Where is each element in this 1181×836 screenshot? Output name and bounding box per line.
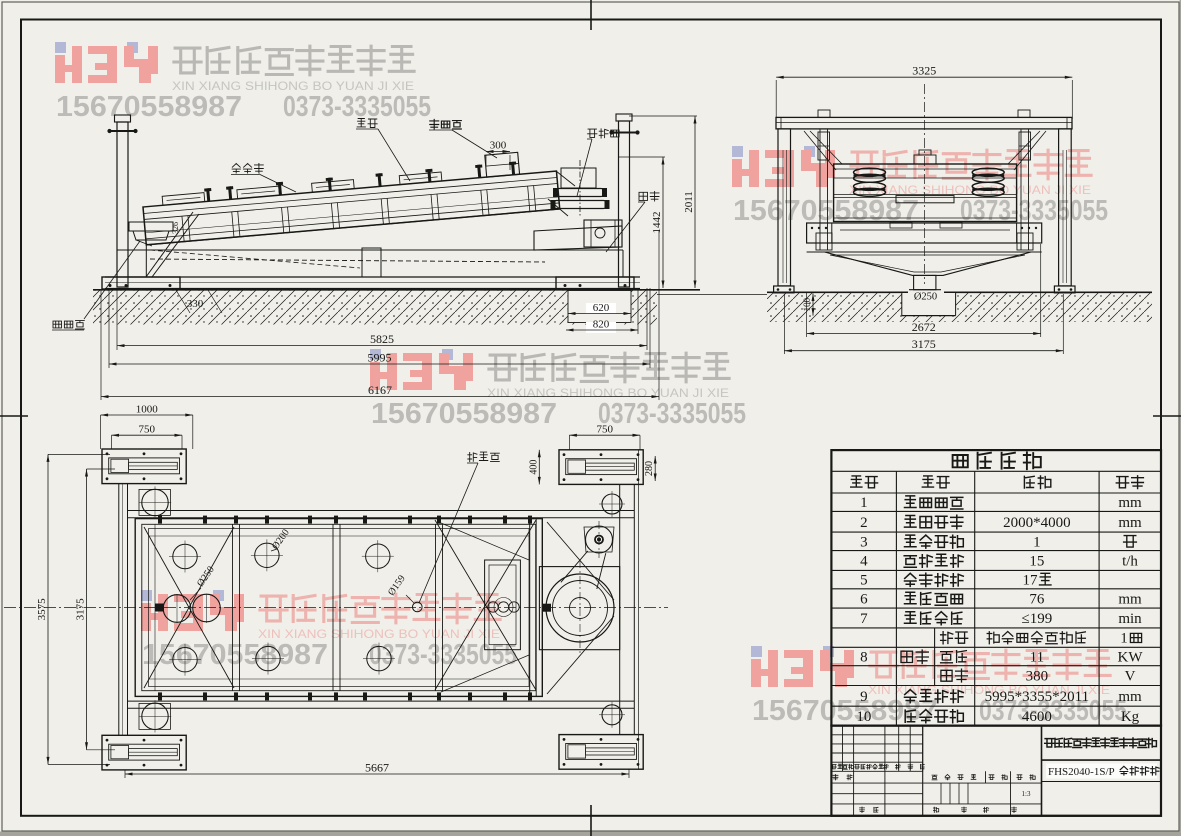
svg-text:7: 7: [860, 611, 868, 627]
svg-text:76: 76: [1029, 592, 1045, 608]
svg-text:5825: 5825: [370, 332, 394, 346]
svg-text:326: 326: [171, 222, 180, 234]
svg-text:5995: 5995: [368, 351, 392, 365]
svg-text:3: 3: [860, 534, 868, 550]
svg-text:mm: mm: [1118, 515, 1142, 531]
svg-text:≤199: ≤199: [1022, 611, 1053, 627]
svg-text:330: 330: [187, 298, 204, 310]
svg-text:620: 620: [593, 302, 610, 314]
svg-text:1000: 1000: [136, 404, 159, 416]
svg-text:mm: mm: [1118, 689, 1142, 705]
svg-text:11: 11: [1030, 650, 1044, 666]
svg-text:t/h: t/h: [1122, 554, 1138, 570]
svg-text:1: 1: [860, 495, 868, 511]
svg-text:15670558987: 15670558987: [142, 639, 328, 671]
svg-text:9: 9: [860, 689, 868, 705]
svg-text:300: 300: [490, 140, 507, 152]
svg-text:2672: 2672: [912, 320, 936, 334]
svg-text:17: 17: [1023, 573, 1039, 589]
svg-text:15: 15: [1029, 554, 1044, 570]
svg-text:3325: 3325: [912, 64, 936, 78]
svg-text:2: 2: [860, 515, 868, 531]
svg-text:750: 750: [139, 424, 156, 436]
svg-text:380: 380: [1026, 669, 1049, 685]
svg-text:4600: 4600: [1022, 709, 1052, 725]
svg-text:mm: mm: [1118, 592, 1142, 608]
svg-text:3175: 3175: [912, 337, 936, 351]
svg-text:1:3: 1:3: [1022, 790, 1031, 798]
svg-text:0373-3335055: 0373-3335055: [598, 398, 746, 430]
svg-text:5: 5: [860, 573, 868, 589]
svg-text:280: 280: [644, 461, 655, 476]
svg-text:5995*3355*2011: 5995*3355*2011: [985, 689, 1089, 705]
svg-text:15670558987: 15670558987: [56, 91, 242, 123]
svg-text:100: 100: [802, 297, 812, 311]
svg-text:Kg: Kg: [1121, 709, 1140, 725]
svg-text:400: 400: [528, 460, 539, 475]
svg-text:2011: 2011: [683, 191, 695, 213]
svg-text:1: 1: [1120, 631, 1128, 647]
svg-text:min: min: [1118, 611, 1142, 627]
svg-text:V: V: [1125, 669, 1136, 685]
svg-text:0373-3335055: 0373-3335055: [283, 91, 431, 123]
svg-text:3575: 3575: [36, 598, 48, 621]
svg-text:Ø250: Ø250: [914, 292, 937, 303]
svg-text:3175: 3175: [75, 598, 87, 621]
svg-text:8: 8: [860, 650, 868, 666]
svg-text:750: 750: [596, 424, 613, 436]
svg-text:10: 10: [856, 709, 871, 725]
svg-text:1442: 1442: [651, 212, 663, 234]
svg-text:mm: mm: [1118, 495, 1142, 511]
svg-text:2000*4000: 2000*4000: [1003, 515, 1071, 531]
svg-text:820: 820: [593, 319, 610, 331]
svg-text:5667: 5667: [365, 761, 389, 775]
svg-text:15670558987: 15670558987: [371, 398, 557, 430]
svg-text:KW: KW: [1118, 650, 1144, 666]
svg-text:4: 4: [860, 554, 868, 570]
svg-text:0373-3335055: 0373-3335055: [369, 639, 517, 671]
svg-text:FHS2040-1S/P: FHS2040-1S/P: [1048, 766, 1115, 778]
svg-text:1: 1: [1033, 534, 1041, 550]
svg-text:6167: 6167: [368, 383, 392, 397]
svg-text:6: 6: [860, 592, 868, 608]
